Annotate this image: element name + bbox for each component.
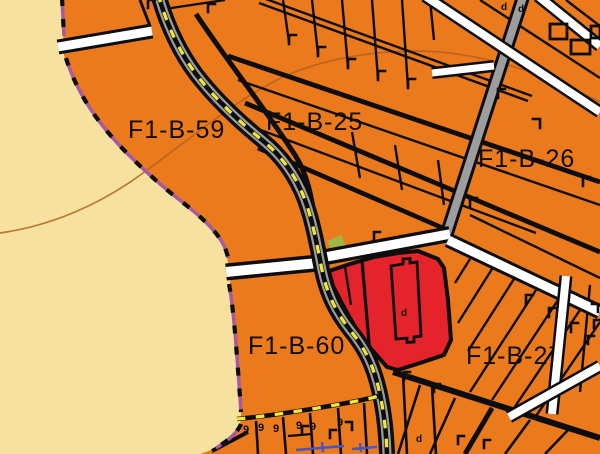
map-viewport[interactable]: F1-B-59 F1-B-25 F1-B-26 F1-B-60 F1-B-27 [0,0,600,454]
svg-text:9: 9 [243,424,249,436]
svg-text:9: 9 [296,420,302,432]
svg-text:9: 9 [310,421,316,433]
zone-label-f1-b-59: F1-B-59 [128,116,225,144]
svg-text:d: d [501,2,507,13]
map-canvas[interactable]: F1-B-59 F1-B-25 F1-B-26 F1-B-60 F1-B-27 [0,0,600,454]
svg-text:9: 9 [273,423,279,435]
svg-text:9: 9 [258,422,264,434]
building-annotation: d [401,308,407,319]
svg-text:9: 9 [337,417,343,429]
svg-text:d: d [518,4,524,15]
zone-label-f1-b-60: F1-B-60 [248,332,345,360]
svg-text:d: d [416,434,422,445]
